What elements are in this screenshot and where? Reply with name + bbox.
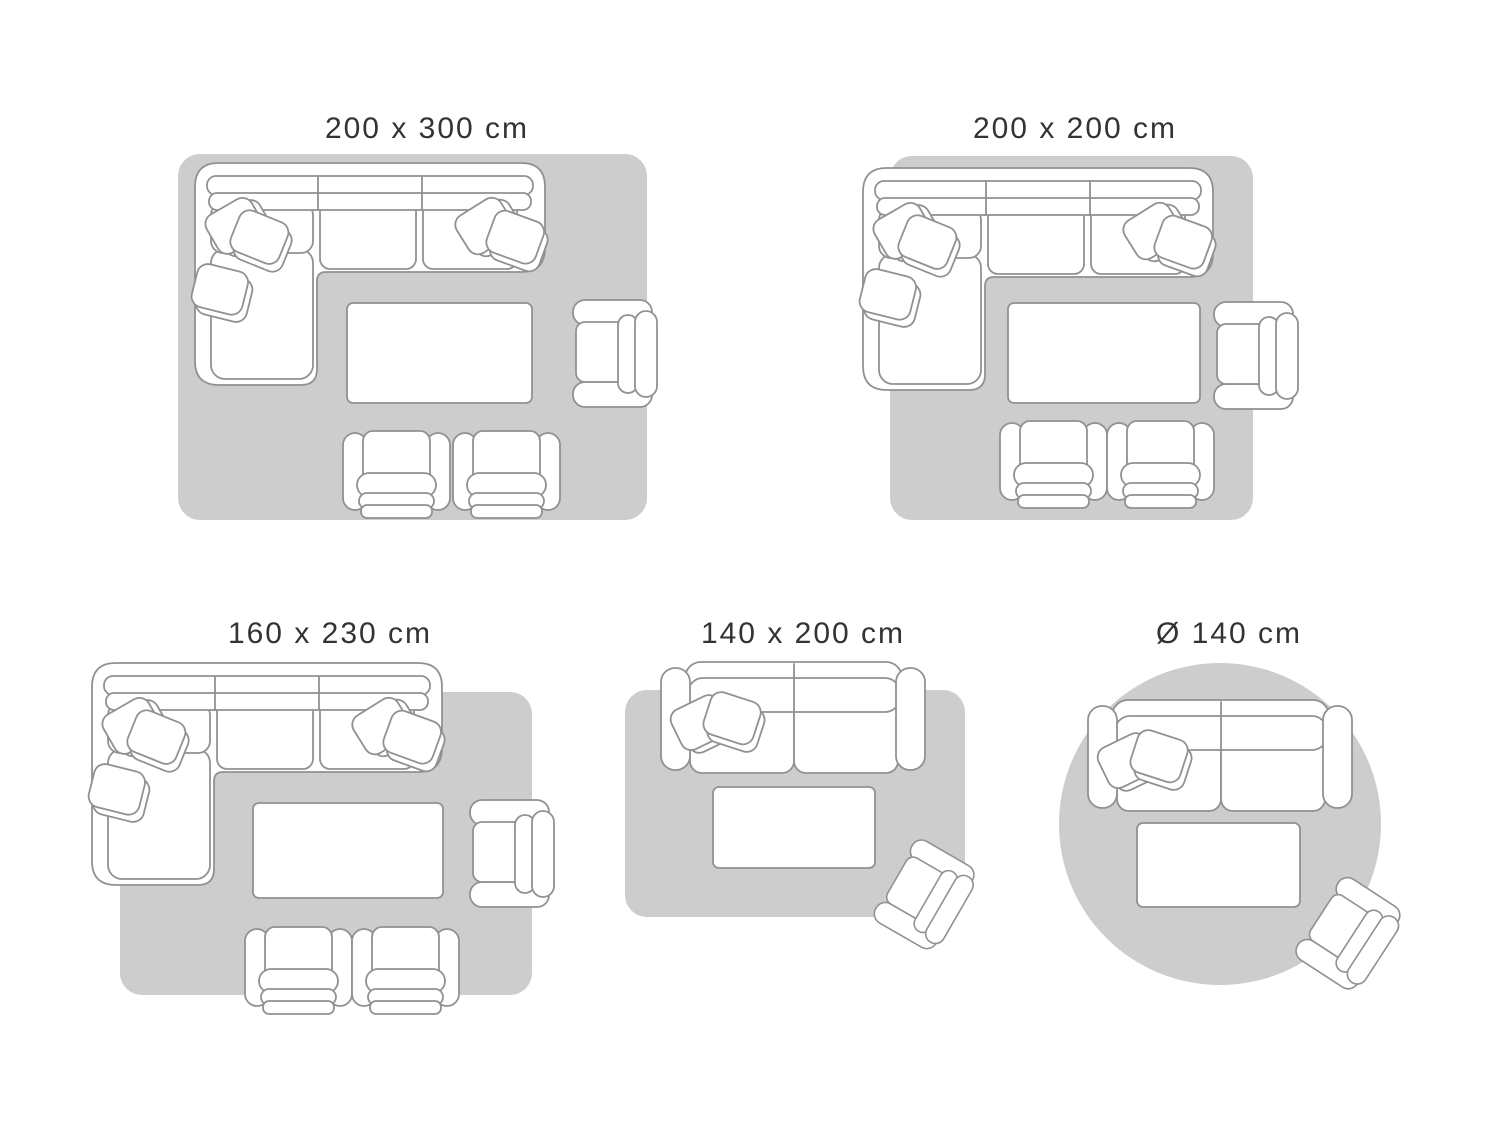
size-label-round-140: Ø 140 cm: [1029, 617, 1429, 650]
club-chair-icon: [1107, 421, 1214, 508]
coffee-table-icon: [347, 303, 532, 403]
club-chair-icon: [352, 927, 459, 1014]
rug-size-guide: 200 x 300 cm 200 x 200 cm 160 x 230 cm 1…: [0, 0, 1500, 1125]
panel-200x300: [178, 154, 657, 520]
rug-layouts-graphic: [0, 0, 1500, 1125]
coffee-table-icon: [253, 803, 443, 898]
panel-200x200: [856, 156, 1298, 520]
club-chair-icon: [1000, 421, 1107, 508]
panel-round-140: [1059, 663, 1408, 995]
panel-140x200: [625, 662, 982, 955]
armchair-icon: [573, 300, 657, 407]
armchair-icon: [470, 800, 554, 907]
club-chair-icon: [343, 431, 450, 518]
club-chair-icon: [453, 431, 560, 518]
coffee-table-icon: [713, 787, 875, 868]
size-label-140x200: 140 x 200 cm: [603, 617, 1003, 650]
coffee-table-icon: [1008, 303, 1200, 403]
size-label-160x230: 160 x 230 cm: [130, 617, 530, 650]
armchair-icon: [1214, 302, 1298, 409]
size-label-200x300: 200 x 300 cm: [227, 112, 627, 145]
two-seat-sofa-icon: [661, 662, 925, 773]
two-seat-sofa-icon: [1088, 700, 1352, 811]
size-label-200x200: 200 x 200 cm: [875, 112, 1275, 145]
coffee-table-icon: [1137, 823, 1300, 907]
panel-160x230: [85, 663, 554, 1014]
club-chair-icon: [245, 927, 352, 1014]
